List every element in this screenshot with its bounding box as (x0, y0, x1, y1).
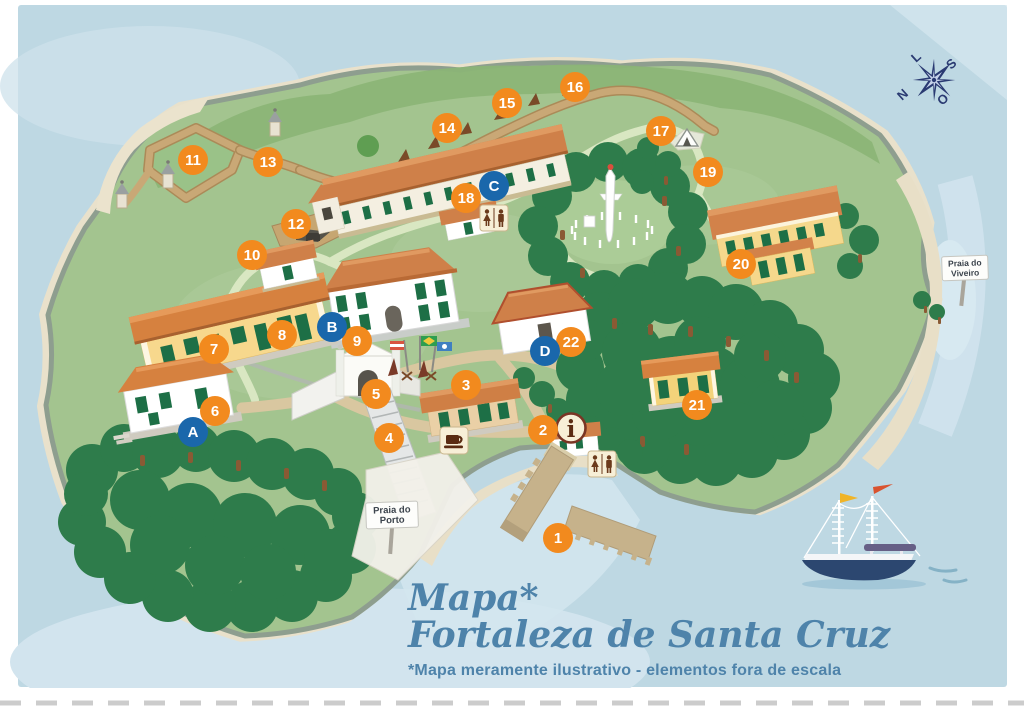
map-marker-A: A (178, 417, 208, 447)
map-title-line2: Fortaleza de Santa Cruz (408, 617, 890, 654)
map-marker-7: 7 (199, 334, 229, 364)
map-marker-17: 17 (646, 116, 676, 146)
map-marker-3: 3 (451, 370, 481, 400)
map-marker-21: 21 (682, 390, 712, 420)
map-marker-18: 18 (451, 183, 481, 213)
map-page: Praia do Porto Praia do Viveiro i (0, 0, 1024, 710)
map-marker-1: 1 (543, 523, 573, 553)
map-marker-8: 8 (267, 320, 297, 350)
map-marker-4: 4 (374, 423, 404, 453)
map-marker-11: 11 (178, 145, 208, 175)
map-marker-10: 10 (237, 240, 267, 270)
map-marker-2: 2 (528, 415, 558, 445)
map-marker-B: B (317, 312, 347, 342)
map-marker-22: 22 (556, 327, 586, 357)
map-marker-C: C (479, 171, 509, 201)
map-marker-5: 5 (361, 379, 391, 409)
map-marker-20: 20 (726, 249, 756, 279)
map-marker-14: 14 (432, 113, 462, 143)
map-marker-D: D (530, 336, 560, 366)
map-marker-19: 19 (693, 157, 723, 187)
map-disclaimer: *Mapa meramente ilustrativo - elementos … (408, 662, 890, 680)
map-title-line1: Mapa* (408, 580, 890, 617)
map-title-block: Mapa* Fortaleza de Santa Cruz *Mapa mera… (408, 580, 890, 680)
map-marker-16: 16 (560, 72, 590, 102)
map-marker-12: 12 (281, 209, 311, 239)
map-marker-13: 13 (253, 147, 283, 177)
map-marker-15: 15 (492, 88, 522, 118)
